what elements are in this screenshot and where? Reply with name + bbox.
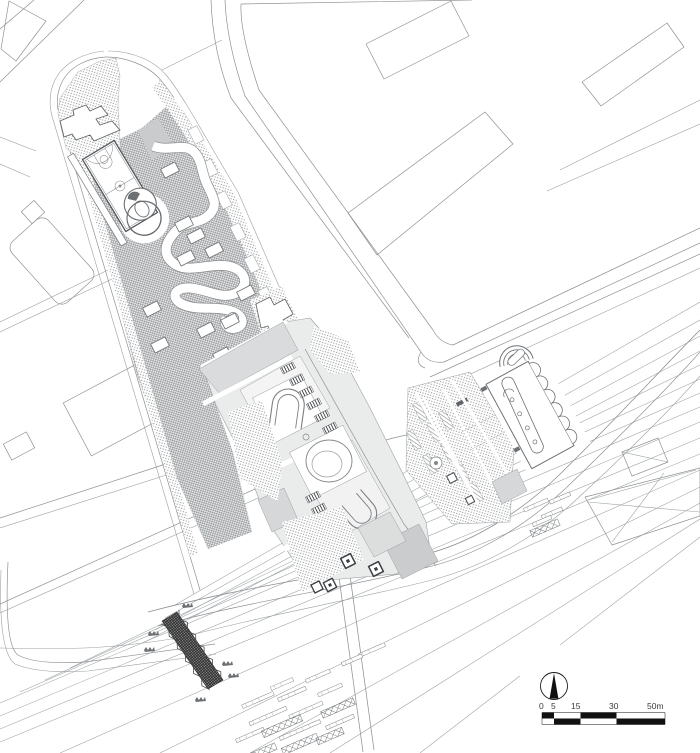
- svg-text:0: 0: [539, 701, 544, 711]
- svg-text:50m: 50m: [647, 701, 664, 711]
- svg-text:30: 30: [609, 701, 619, 711]
- svg-text:15: 15: [571, 701, 581, 711]
- svg-text:5: 5: [551, 701, 556, 711]
